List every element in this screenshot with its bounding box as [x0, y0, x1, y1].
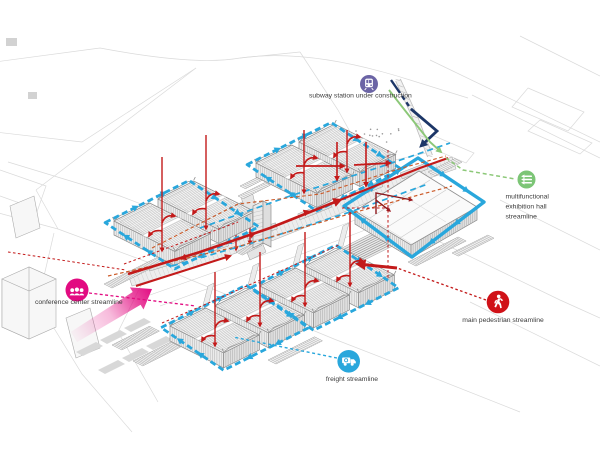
svg-text:multifunctional: multifunctional	[506, 194, 550, 201]
svg-text:freight streamline: freight streamline	[326, 376, 378, 383]
svg-text:exhibition hall: exhibition hall	[506, 204, 548, 211]
svg-text:conference center streamline: conference center streamline	[35, 299, 123, 306]
svg-text:main pedestrian streamline: main pedestrian streamline	[462, 317, 544, 324]
svg-text:streamline: streamline	[506, 214, 538, 221]
svg-text:subway station under construct: subway station under construction	[309, 93, 412, 100]
